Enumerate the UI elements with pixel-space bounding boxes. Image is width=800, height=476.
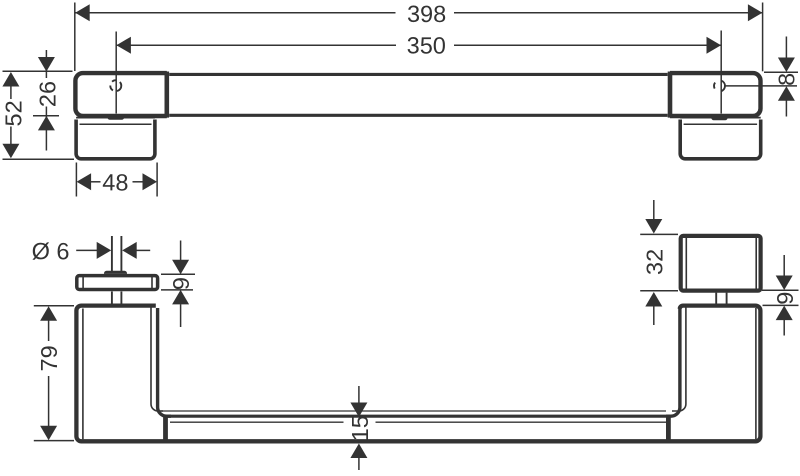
svg-text:32: 32 xyxy=(641,249,667,275)
svg-text:350: 350 xyxy=(407,32,446,58)
svg-text:9: 9 xyxy=(772,292,798,305)
svg-text:52: 52 xyxy=(0,100,26,126)
svg-text:398: 398 xyxy=(407,1,446,27)
svg-text:26: 26 xyxy=(35,81,61,107)
svg-text:79: 79 xyxy=(36,345,62,371)
svg-text:Ø 6: Ø 6 xyxy=(32,238,70,264)
svg-text:9: 9 xyxy=(168,277,194,290)
svg-text:15: 15 xyxy=(347,415,373,441)
svg-text:8: 8 xyxy=(774,73,800,86)
svg-text:48: 48 xyxy=(102,169,128,195)
